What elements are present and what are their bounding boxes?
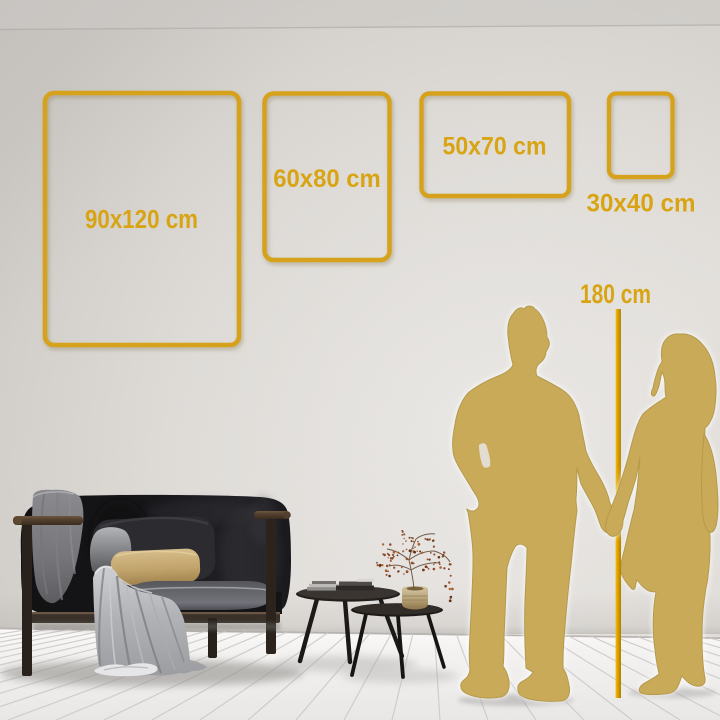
svg-text:90x120 cm: 90x120 cm bbox=[85, 204, 198, 234]
svg-text:30x40 cm: 30x40 cm bbox=[587, 190, 696, 218]
svg-text:180 cm: 180 cm bbox=[580, 279, 651, 309]
svg-text:50x70 cm: 50x70 cm bbox=[443, 133, 547, 161]
svg-text:60x80 cm: 60x80 cm bbox=[273, 165, 381, 193]
